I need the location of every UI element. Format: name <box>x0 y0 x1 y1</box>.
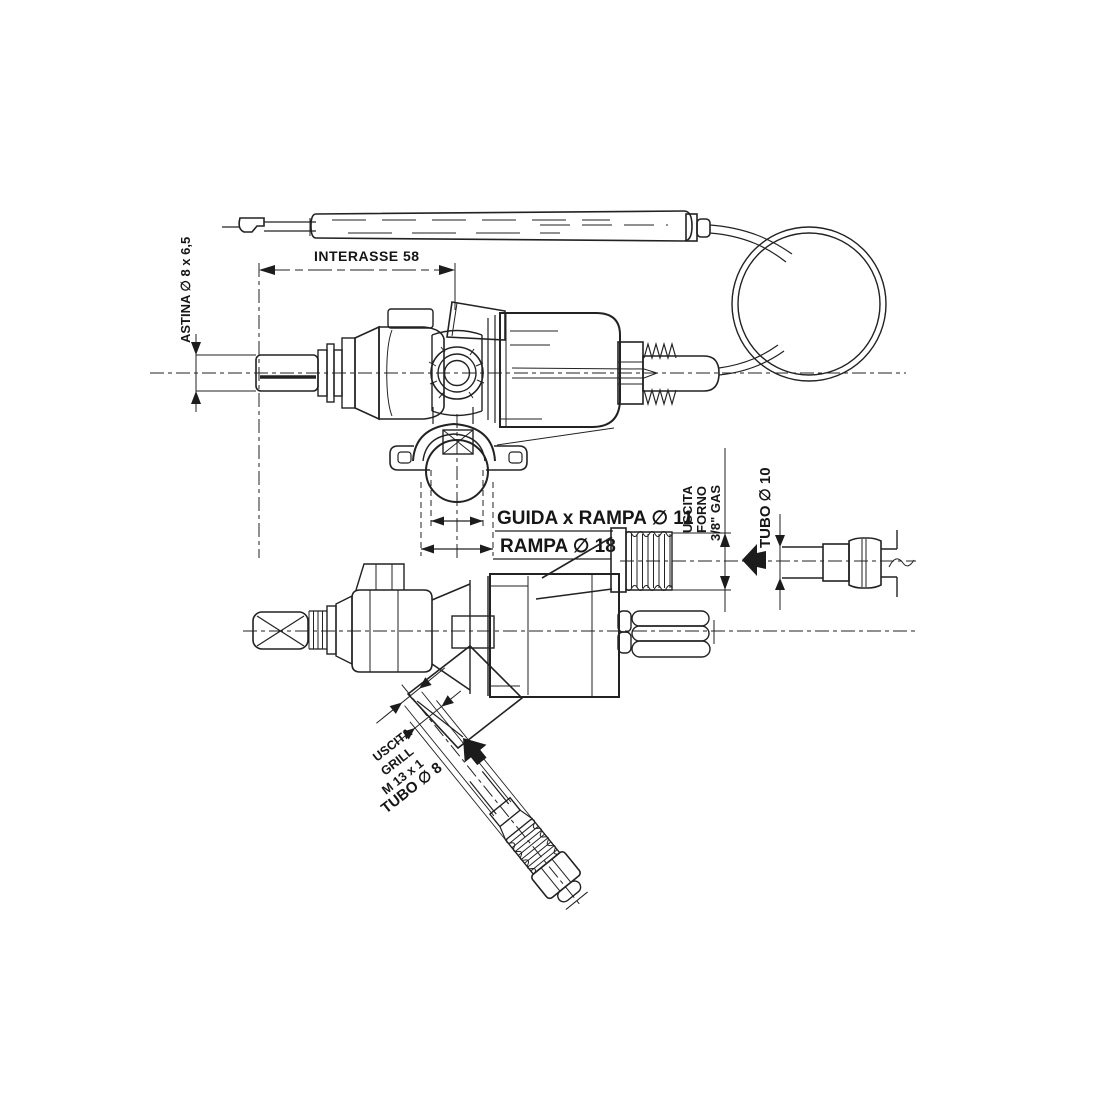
assembly-direction-arrow-grill <box>452 729 493 770</box>
bypass-spline <box>632 611 709 626</box>
label-uscita-forno-1: USCITA <box>680 485 695 533</box>
label-interasse: INTERASSE 58 <box>314 248 420 264</box>
thermocouple-probe <box>222 211 792 262</box>
label-guida-rampa: GUIDA x RAMPA ∅ 11 <box>497 508 694 529</box>
valve-top-view <box>256 302 719 502</box>
oven-outlet-dimensions: USCITA FORNO 3/8" GAS TUBO ∅ 10 <box>672 448 785 612</box>
valve-body-top <box>500 313 620 427</box>
label-uscita-forno-3: 3/8" GAS <box>708 485 723 541</box>
label-uscita-forno-2: FORNO <box>694 486 709 533</box>
technical-drawing-canvas: INTERASSE 58 ASTINA ∅ 8 x 6,5 <box>0 0 1100 1100</box>
label-tubo-forno: TUBO ∅ 10 <box>757 467 774 548</box>
valve-side-view <box>253 528 714 748</box>
grill-outlet-labels: USCITA GRILL M 13 x 1 TUBO ∅ 8 <box>370 725 445 817</box>
dimension-astina: ASTINA ∅ 8 x 6,5 <box>178 237 256 412</box>
oven-tube-fitting <box>782 530 914 597</box>
dimension-interasse: INTERASSE 58 <box>259 248 455 310</box>
label-astina: ASTINA ∅ 8 x 6,5 <box>178 237 193 343</box>
centerlines <box>150 263 918 631</box>
break-symbol <box>889 559 914 567</box>
dimension-guida-rampa: GUIDA x RAMPA ∅ 11 RAMPA ∅ 18 <box>421 470 694 559</box>
valve-body-side <box>490 574 619 697</box>
capillary-coil <box>719 227 886 381</box>
label-rampa: RAMPA ∅ 18 <box>500 536 616 557</box>
